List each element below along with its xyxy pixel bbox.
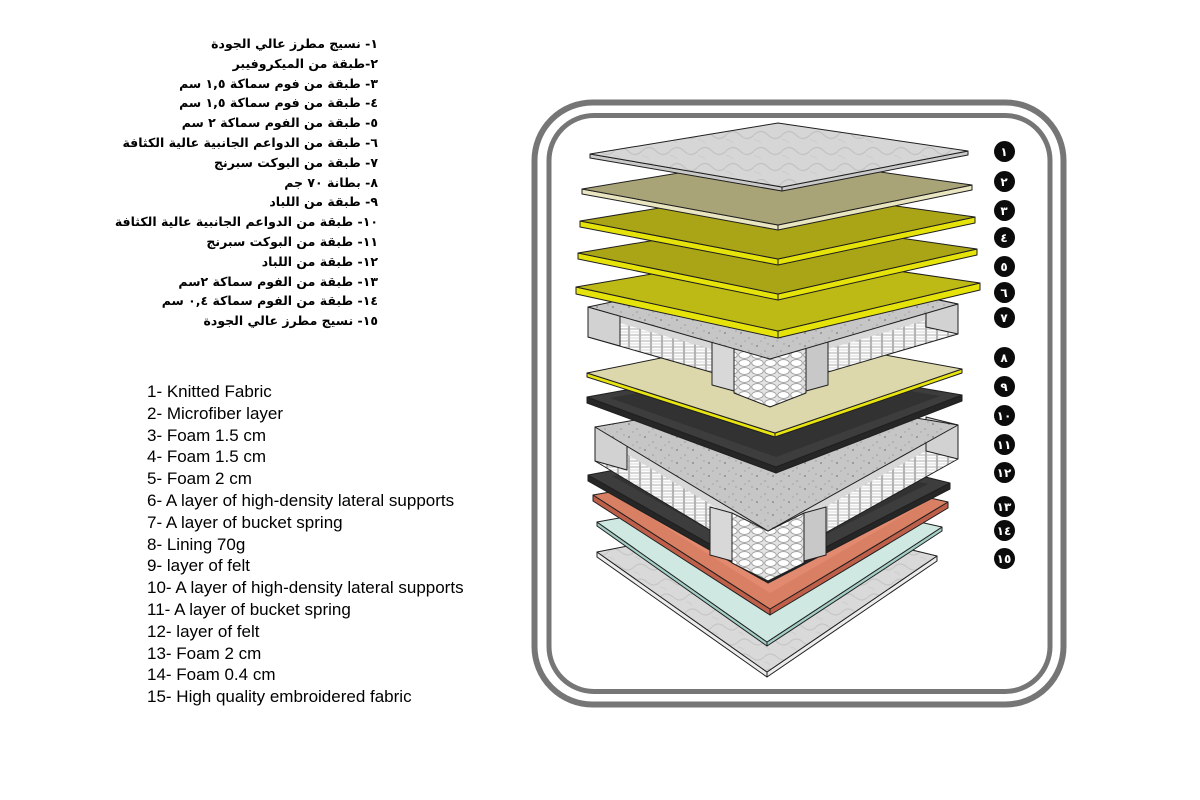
layer-number-badge: ١ xyxy=(994,141,1015,162)
arabic-list-item: ٨- بطانة ٧٠ جم xyxy=(48,173,378,193)
layer-number-badge-label: ١ xyxy=(1000,146,1007,158)
arabic-layer-list: ١- نسيج مطرز عالي الجودة٢-طبقة من الميكر… xyxy=(48,34,378,331)
layer-number-badge-label: ٢ xyxy=(1000,176,1007,188)
infographic-canvas: ١- نسيج مطرز عالي الجودة٢-طبقة من الميكر… xyxy=(0,0,1200,800)
arabic-list-item: ٤- طبقة من فوم سماكة ١,٥ سم xyxy=(48,93,378,113)
arabic-list-item: ١٠- طبقة من الدواعم الجانبية عالية الكثا… xyxy=(48,212,378,232)
layer-number-badge-label: ١١ xyxy=(997,439,1012,451)
layer-number-badge: ٣ xyxy=(994,200,1015,221)
arabic-list-item: ٦- طبقة من الدواعم الجانبية عالية الكثاف… xyxy=(48,133,378,153)
arabic-list-item: ٥- طبقة من الفوم سماكة ٢ سم xyxy=(48,113,378,133)
layer-number-badge: ١٠ xyxy=(994,405,1015,426)
arabic-list-item: ٣- طبقة من فوم سماكة ١,٥ سم xyxy=(48,74,378,94)
layer-number-badge: ٩ xyxy=(994,376,1015,397)
arabic-list-item: ٩- طبقة من اللباد xyxy=(48,192,378,212)
badge-column: ١ ٢ ٣ ٤ ٥ ٦ ٧ ٨ ٩ ١٠ ١١ ١٢ xyxy=(530,95,1075,720)
layer-number-badge-label: ٧ xyxy=(1000,312,1007,324)
layer-number-badge-label: ١٢ xyxy=(997,467,1012,479)
english-list-item: 8- Lining 70g xyxy=(147,534,464,556)
arabic-list-item: ٧- طبقة من البوكت سبرنج xyxy=(48,153,378,173)
arabic-list-item: ١٢- طبقة من اللباد xyxy=(48,252,378,272)
layer-number-badge: ٤ xyxy=(994,227,1015,248)
layer-number-badge-label: ٤ xyxy=(1000,232,1007,244)
english-list-item: 14- Foam 0.4 cm xyxy=(147,664,464,686)
english-list-item: 6- A layer of high-density lateral suppo… xyxy=(147,490,464,512)
layer-number-badge: ٢ xyxy=(994,171,1015,192)
english-list-item: 9- layer of felt xyxy=(147,555,464,577)
layer-number-badge: ١١ xyxy=(994,434,1015,455)
layer-number-badge: ١٤ xyxy=(994,520,1015,541)
layer-number-badge-label: ٨ xyxy=(1000,352,1007,364)
layer-number-badge: ١٣ xyxy=(994,496,1015,517)
arabic-list-item: ١٥- نسيج مطرز عالي الجودة xyxy=(48,311,378,331)
english-list-item: 7- A layer of bucket spring xyxy=(147,512,464,534)
layer-number-badge-label: ٥ xyxy=(1000,261,1007,273)
layer-number-badge-label: ٦ xyxy=(1000,287,1007,299)
layer-number-badge: ٨ xyxy=(994,347,1015,368)
layer-number-badge-label: ١٣ xyxy=(997,501,1012,513)
english-list-item: 10- A layer of high-density lateral supp… xyxy=(147,577,464,599)
arabic-list-item: ١٤- طبقة من الفوم سماكة ٠,٤ سم xyxy=(48,291,378,311)
english-list-item: 15- High quality embroidered fabric xyxy=(147,686,464,708)
english-list-item: 12- layer of felt xyxy=(147,621,464,643)
english-list-item: 5- Foam 2 cm xyxy=(147,468,464,490)
layer-number-badge: ٧ xyxy=(994,307,1015,328)
arabic-list-item: ٢-طبقة من الميكروفيبر xyxy=(48,54,378,74)
arabic-list-item: ١- نسيج مطرز عالي الجودة xyxy=(48,34,378,54)
layer-number-badge: ١٥ xyxy=(994,548,1015,569)
english-list-item: 13- Foam 2 cm xyxy=(147,643,464,665)
english-list-item: 4- Foam 1.5 cm xyxy=(147,446,464,468)
english-list-item: 11- A layer of bucket spring xyxy=(147,599,464,621)
english-list-item: 3- Foam 1.5 cm xyxy=(147,425,464,447)
layer-number-badge-label: ١٥ xyxy=(997,553,1012,565)
layer-number-badge: ١٢ xyxy=(994,462,1015,483)
arabic-list-item: ١١- طبقة من البوكت سبرنج xyxy=(48,232,378,252)
layer-number-badge: ٦ xyxy=(994,282,1015,303)
english-list-item: 2- Microfiber layer xyxy=(147,403,464,425)
layer-number-badge-label: ١٠ xyxy=(997,410,1012,422)
english-layer-list: 1- Knitted Fabric2- Microfiber layer3- F… xyxy=(147,381,464,708)
layer-number-badge-label: ٣ xyxy=(1000,205,1007,217)
layer-number-badge-label: ٩ xyxy=(1000,381,1007,393)
arabic-list-item: ١٣- طبقة من الفوم سماكة ٢سم xyxy=(48,272,378,292)
layer-number-badge: ٥ xyxy=(994,256,1015,277)
layer-number-badge-label: ١٤ xyxy=(997,525,1012,537)
english-list-item: 1- Knitted Fabric xyxy=(147,381,464,403)
diagram-panel: ١ ٢ ٣ ٤ ٥ ٦ ٧ ٨ ٩ ١٠ ١١ ١٢ xyxy=(530,95,1075,720)
